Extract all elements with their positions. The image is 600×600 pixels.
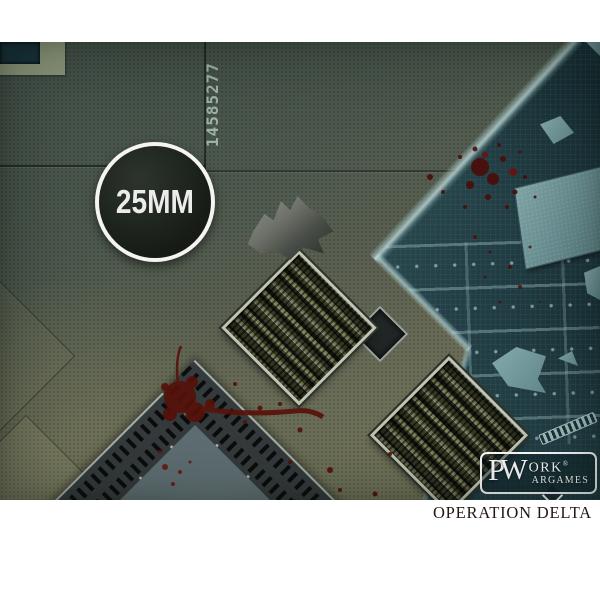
registered-mark: ® (563, 460, 568, 468)
product-title: OPERATION DELTA (433, 503, 592, 523)
logo-text-argames: ARGAMES (532, 476, 589, 486)
corner-hatch-window (0, 42, 40, 64)
product-photo: 14585277 25MM P W ORK® ARGAMES (0, 42, 600, 500)
logo-letter-w: W (500, 455, 527, 485)
panel-seam-horizontal (206, 170, 458, 172)
scale-badge: 25MM (95, 142, 215, 262)
corner-hatch-panel (0, 42, 65, 75)
scale-badge-label: 25MM (116, 183, 194, 221)
logo-text-ork: ORK® (529, 458, 568, 475)
serial-number: 14585277 (203, 45, 231, 163)
pwork-wargames-logo: P W ORK® ARGAMES (480, 452, 597, 494)
